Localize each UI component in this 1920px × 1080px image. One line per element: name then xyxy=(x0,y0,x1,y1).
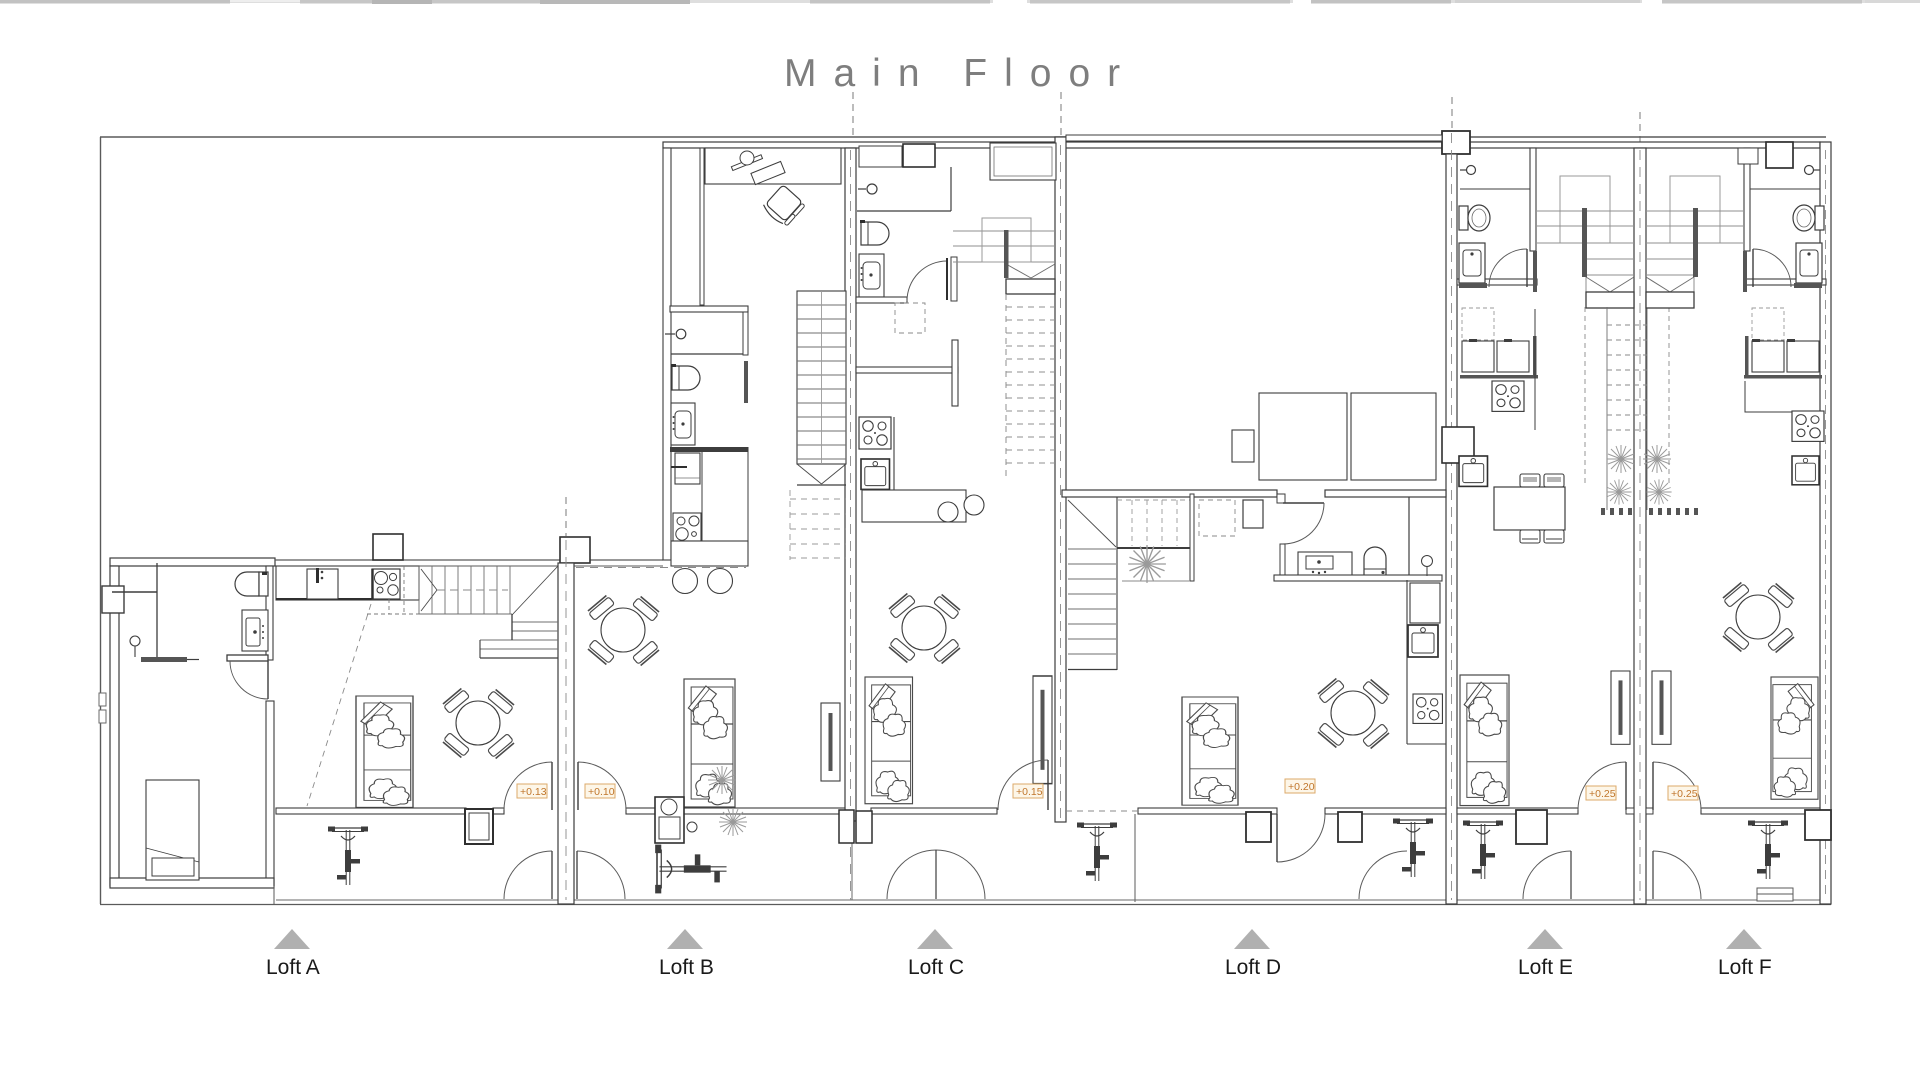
svg-text:Main Floor: Main Floor xyxy=(784,52,1137,95)
svg-text:Loft A: Loft A xyxy=(266,956,320,979)
svg-text:+0.25: +0.25 xyxy=(1671,788,1698,800)
svg-text:Loft D: Loft D xyxy=(1225,956,1281,979)
svg-text:+0.20: +0.20 xyxy=(1288,781,1315,793)
svg-text:Loft B: Loft B xyxy=(659,956,714,979)
svg-text:+0.15: +0.15 xyxy=(1016,786,1043,798)
svg-text:+0.13: +0.13 xyxy=(520,786,547,798)
svg-text:+0.10: +0.10 xyxy=(588,786,615,798)
svg-text:+0.25: +0.25 xyxy=(1589,788,1616,800)
svg-text:Loft C: Loft C xyxy=(908,956,964,979)
svg-text:Loft F: Loft F xyxy=(1718,956,1772,979)
svg-text:Loft E: Loft E xyxy=(1518,956,1573,979)
